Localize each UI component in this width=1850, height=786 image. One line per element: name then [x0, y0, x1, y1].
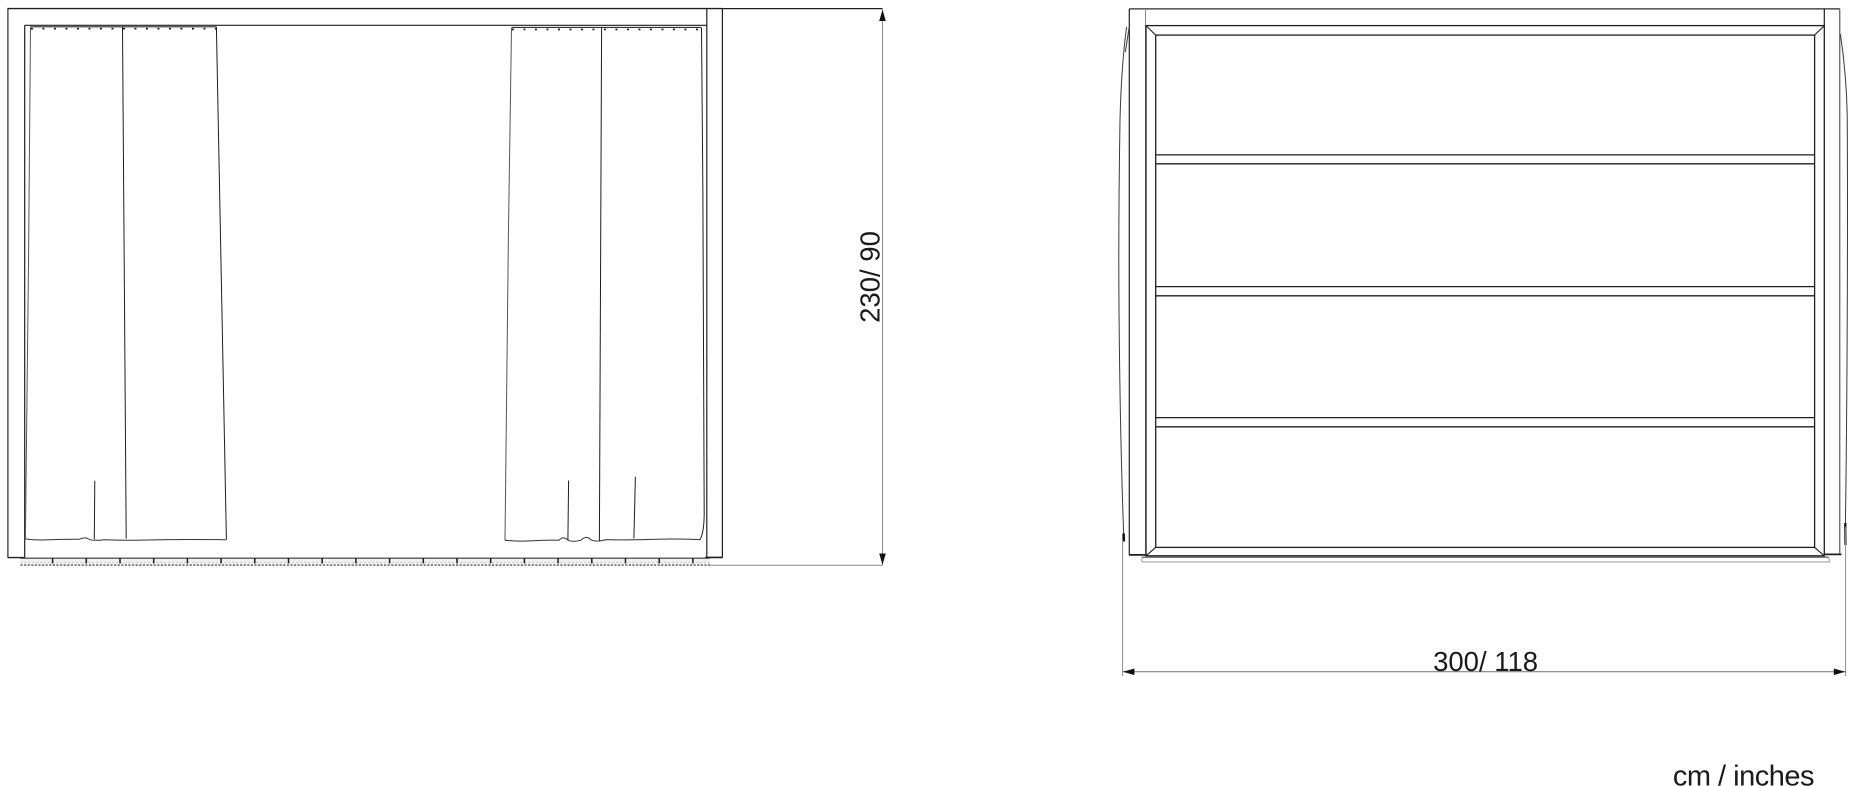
svg-text:230/ 90: 230/ 90 — [854, 231, 885, 323]
svg-text:cm / inches: cm / inches — [1673, 760, 1814, 786]
svg-text:300/ 118: 300/ 118 — [1433, 646, 1538, 677]
